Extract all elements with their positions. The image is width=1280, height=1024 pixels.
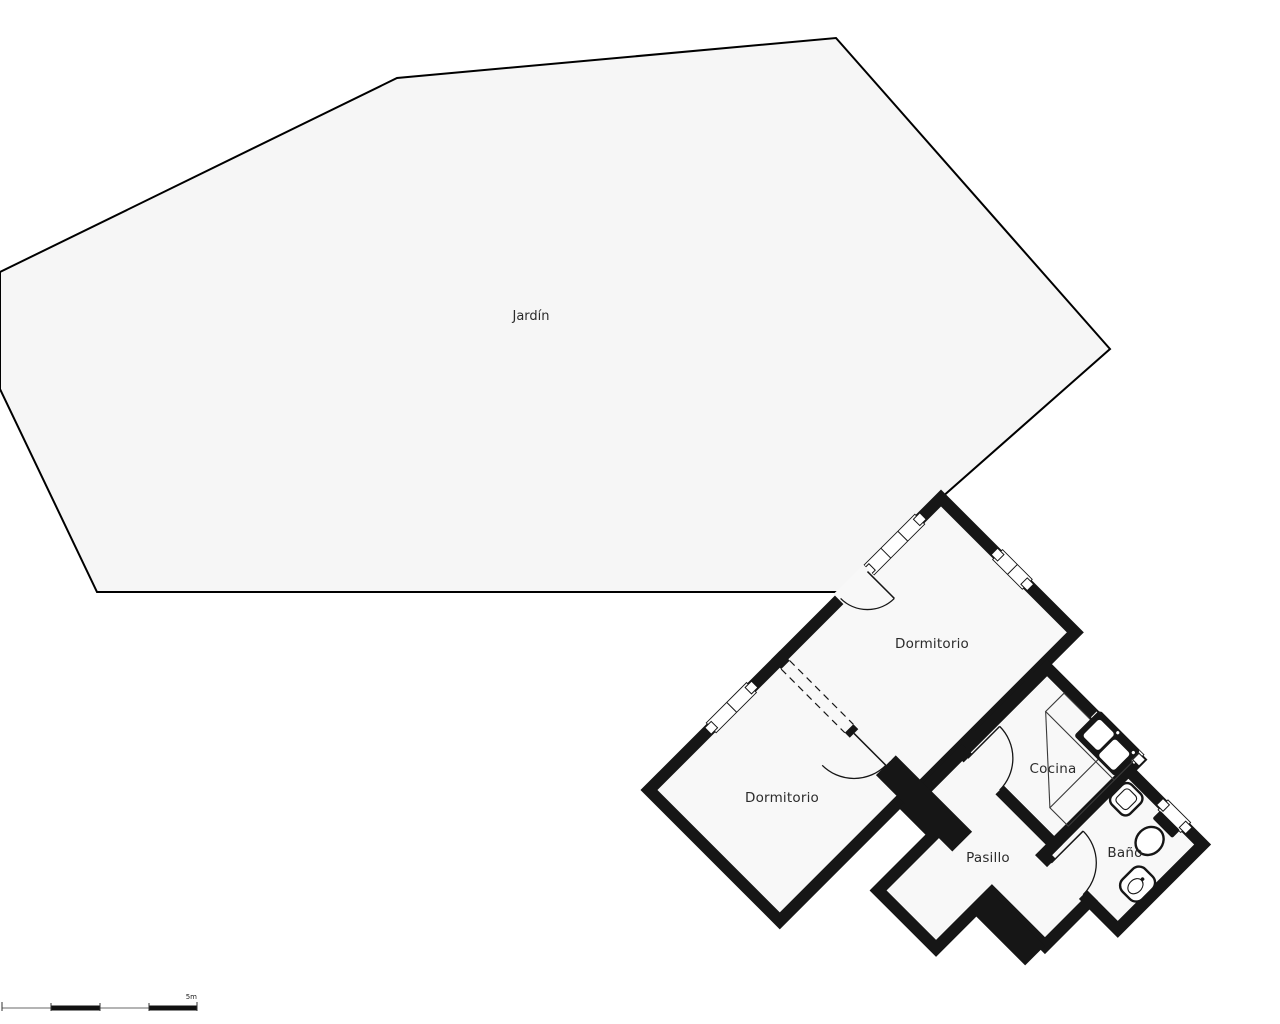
label-pasillo: Pasillo xyxy=(966,850,1010,866)
scale-bar-label: 5m xyxy=(186,993,197,1001)
label-bano: Baño xyxy=(1107,845,1142,861)
label-cocina: Cocina xyxy=(1030,761,1077,777)
floor-plan-page: Jardín Dormitorio Dormitorio Cocina Pasi… xyxy=(0,0,1280,1024)
scale-bar: 5m xyxy=(2,993,197,1011)
floor-plan-canvas: Jardín Dormitorio Dormitorio Cocina Pasi… xyxy=(0,0,1280,1024)
label-dormitorio-2: Dormitorio xyxy=(745,790,819,806)
label-dormitorio-1: Dormitorio xyxy=(895,636,969,652)
label-jardin: Jardín xyxy=(511,309,549,324)
